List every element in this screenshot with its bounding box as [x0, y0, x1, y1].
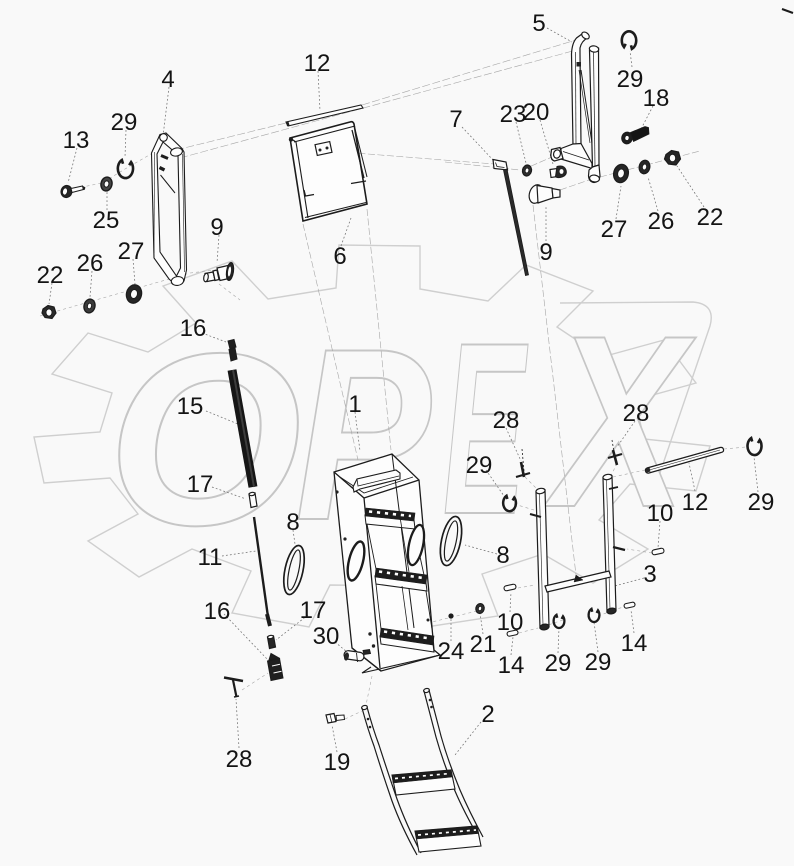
svg-text:22: 22	[37, 262, 64, 289]
svg-text:20: 20	[523, 99, 550, 126]
svg-text:3: 3	[643, 561, 656, 588]
svg-text:29: 29	[748, 489, 775, 516]
svg-text:30: 30	[313, 623, 340, 650]
svg-text:28: 28	[226, 746, 253, 773]
svg-text:17: 17	[300, 597, 327, 624]
svg-text:14: 14	[498, 652, 525, 679]
svg-text:19: 19	[324, 749, 351, 776]
svg-text:16: 16	[204, 598, 231, 625]
svg-text:29: 29	[466, 452, 493, 479]
svg-text:25: 25	[93, 207, 120, 234]
svg-text:27: 27	[601, 216, 628, 243]
svg-text:9: 9	[539, 239, 552, 266]
svg-text:17: 17	[187, 471, 214, 498]
svg-text:7: 7	[449, 106, 462, 133]
svg-text:13: 13	[63, 127, 90, 154]
svg-text:8: 8	[496, 542, 509, 569]
svg-text:10: 10	[497, 609, 524, 636]
svg-text:14: 14	[621, 630, 648, 657]
svg-text:28: 28	[493, 407, 520, 434]
svg-text:О: О	[107, 302, 302, 576]
svg-text:29: 29	[585, 649, 612, 676]
svg-text:26: 26	[648, 208, 675, 235]
svg-text:18: 18	[643, 85, 670, 112]
svg-text:4: 4	[161, 66, 174, 93]
svg-text:11: 11	[198, 544, 223, 571]
svg-text:12: 12	[304, 50, 331, 77]
svg-text:9: 9	[210, 214, 223, 241]
svg-text:15: 15	[177, 393, 204, 420]
svg-text:6: 6	[333, 243, 346, 270]
svg-text:10: 10	[647, 500, 674, 527]
svg-text:2: 2	[481, 701, 494, 728]
svg-text:29: 29	[617, 66, 644, 93]
svg-text:16: 16	[180, 315, 207, 342]
svg-text:21: 21	[470, 631, 497, 658]
svg-text:1: 1	[348, 391, 361, 418]
svg-text:26: 26	[77, 250, 104, 277]
svg-text:28: 28	[623, 400, 650, 427]
svg-text:8: 8	[286, 509, 299, 536]
svg-text:29: 29	[111, 109, 138, 136]
svg-text:24: 24	[438, 638, 465, 665]
svg-text:5: 5	[532, 10, 545, 37]
svg-text:22: 22	[697, 204, 724, 231]
svg-text:27: 27	[118, 238, 145, 265]
svg-text:29: 29	[545, 650, 572, 677]
svg-text:12: 12	[682, 489, 709, 516]
